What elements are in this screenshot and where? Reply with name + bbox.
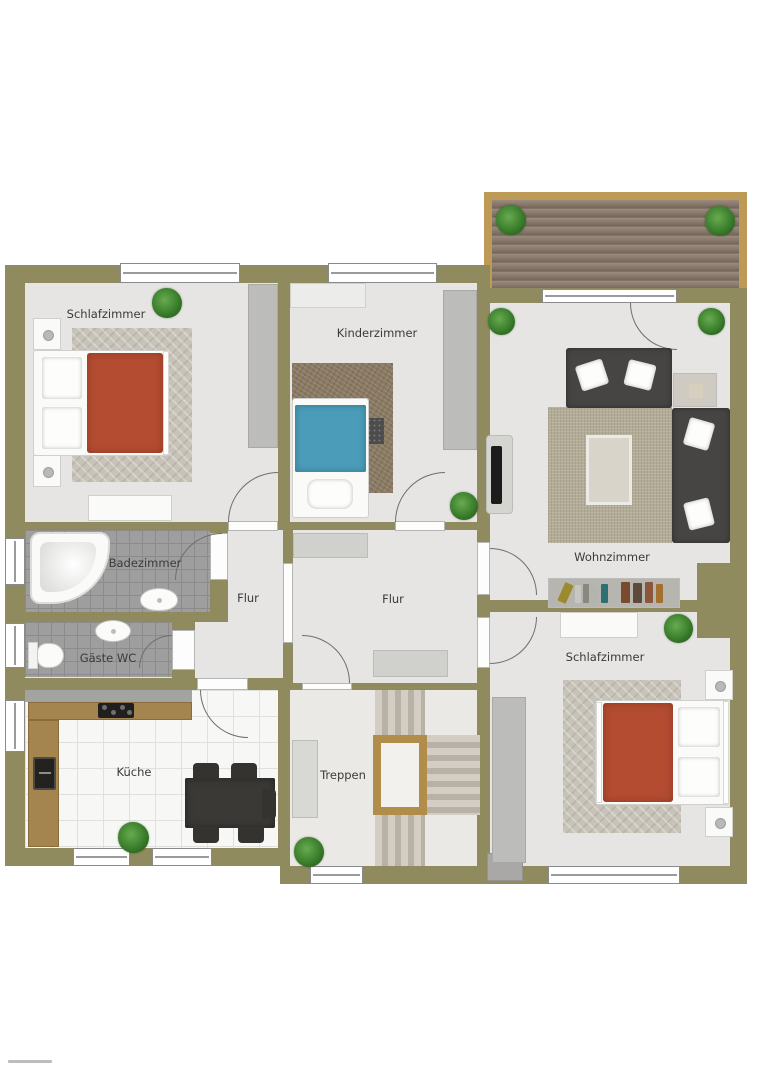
headboard: [723, 701, 729, 804]
single-bed: [292, 398, 369, 518]
room-label-flur-west: Flur: [237, 591, 259, 605]
pillow: [683, 417, 716, 451]
chair: [193, 827, 219, 843]
room-label-wohnzimmer: Wohnzimmer: [574, 550, 650, 564]
footboard: [596, 702, 602, 803]
sink: [140, 588, 178, 611]
plant-icon: [705, 206, 735, 236]
plant-icon: [488, 308, 515, 335]
double-bed: [595, 700, 729, 805]
book: [645, 582, 653, 603]
hall-sideboard: [373, 650, 448, 677]
chair: [231, 763, 257, 779]
wall-bed-kinder: [278, 283, 290, 530]
sink: [95, 620, 131, 642]
room-label-treppen: Treppen: [320, 768, 366, 782]
wardrobe: [443, 290, 477, 450]
room-label-kinderzimmer: Kinderzimmer: [337, 326, 418, 340]
drain: [111, 629, 116, 634]
side-table: [673, 373, 717, 407]
tv: [491, 446, 502, 504]
room-label-gaeste-wc: Gäste WC: [80, 651, 137, 665]
duvet-blue: [295, 405, 366, 472]
window: [120, 263, 240, 283]
nightstand: [33, 455, 61, 487]
door-wc: [172, 630, 195, 670]
hall-sideboard: [293, 533, 368, 558]
sideboard: [548, 578, 680, 608]
window: [310, 866, 363, 884]
window: [328, 263, 437, 283]
dresser: [560, 612, 638, 638]
book: [633, 583, 642, 603]
knob: [43, 330, 54, 341]
window: [73, 848, 130, 866]
floor-plan: Schlafzimmer Kinderzimmer Wohnzimmer: [0, 0, 763, 1080]
pillow: [678, 757, 720, 797]
plant-icon: [294, 837, 324, 867]
book: [601, 584, 608, 603]
plant-icon: [118, 822, 149, 853]
pillow: [307, 479, 353, 509]
window: [152, 848, 212, 866]
book: [557, 582, 573, 604]
plant-icon: [496, 205, 526, 235]
door-kinderzimmer: [395, 521, 445, 531]
sofa: [672, 408, 730, 543]
drain: [157, 598, 162, 603]
wall-kitchen-bottom: [5, 848, 280, 866]
dresser: [88, 495, 172, 521]
door-kueche: [197, 678, 248, 690]
book: [575, 585, 581, 603]
window: [5, 700, 25, 752]
hob: [98, 703, 134, 718]
book: [583, 584, 589, 603]
room-label-schlafzimmer1: Schlafzimmer: [67, 307, 146, 321]
plant-icon: [664, 614, 693, 643]
room-label-kueche: Küche: [117, 765, 152, 779]
balcony-deck: [492, 200, 739, 292]
coffee-rug: [586, 435, 632, 505]
door-wohnzimmer: [477, 542, 490, 595]
knob: [43, 467, 54, 478]
window: [5, 623, 25, 668]
door-treppen: [302, 683, 352, 690]
duvet-red: [603, 703, 673, 802]
pillow: [42, 357, 82, 399]
plant-icon: [152, 288, 182, 318]
room-label-flur-mitte: Flur: [382, 592, 404, 606]
sofa: [566, 348, 672, 408]
nightstand: [705, 670, 733, 700]
pillow: [623, 359, 656, 391]
kitchen-sink: [33, 757, 56, 790]
book: [621, 582, 630, 603]
chair: [238, 827, 264, 843]
nightstand: [33, 318, 61, 350]
toilet-bowl: [37, 643, 64, 668]
footboard: [163, 351, 169, 455]
book: [591, 586, 597, 603]
burner: [111, 710, 116, 715]
room-label-schlafzimmer2: Schlafzimmer: [566, 650, 645, 664]
plant-icon: [698, 308, 725, 335]
nightstand: [705, 807, 733, 837]
knob: [715, 818, 726, 829]
stairs-upper-flight: [375, 690, 425, 735]
pillow: [575, 358, 610, 391]
window: [548, 866, 680, 884]
chair: [193, 763, 219, 779]
chair: [262, 789, 276, 819]
stairs-side-flight: [427, 735, 480, 815]
duvet-red: [87, 353, 163, 453]
wall-bath-wc: [25, 612, 228, 622]
burner: [127, 710, 132, 715]
wardrobe: [492, 697, 526, 863]
shelf: [290, 283, 366, 308]
pillow: [42, 407, 82, 449]
stairs-lower-flight: [375, 815, 425, 866]
burner: [120, 705, 125, 710]
plant-icon: [450, 492, 478, 520]
burner: [102, 705, 107, 710]
pillow: [678, 707, 720, 747]
wall-kitchen-right: [278, 690, 290, 866]
door-schlafzimmer2: [477, 617, 490, 668]
watermark: [8, 1060, 52, 1063]
wall-right-chunk: [697, 563, 747, 638]
double-bed: [33, 350, 169, 456]
hall-cabinet: [292, 740, 318, 818]
backsplash: [25, 690, 192, 702]
book: [656, 584, 663, 603]
wardrobe: [248, 284, 278, 448]
room-label-badezimmer: Badezimmer: [109, 556, 182, 570]
tray: [689, 384, 703, 398]
faucet: [39, 772, 51, 774]
pillow: [683, 497, 715, 530]
tub-basin: [40, 542, 96, 592]
door-bedroom1: [228, 521, 278, 531]
window: [542, 289, 677, 303]
stairwell-void: [373, 735, 427, 815]
opening-flur: [283, 563, 293, 643]
window: [5, 538, 25, 585]
knob: [715, 681, 726, 692]
